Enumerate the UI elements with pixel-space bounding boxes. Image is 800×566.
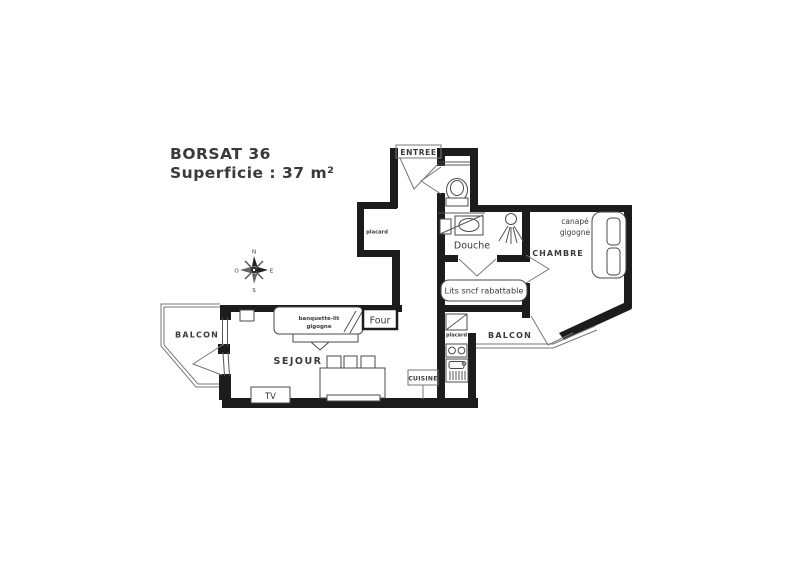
shower-room-door-swing [459,259,496,276]
wall-segment [468,333,476,408]
banquette-label-line2: gigogne [306,324,331,330]
room-label-cuisine: CUISINE [408,376,437,383]
wall-segment [522,305,530,318]
floor-plan-page: BORSAT 36 Superficie : 37 m² N S E O [0,0,800,566]
wall-segment [470,205,632,212]
chair-icon [344,356,357,369]
room-label-entree: ENTREE [400,148,436,157]
wall-segment [437,305,530,312]
room-label-chambre: CHAMBRE [532,249,583,258]
banquette-label-line1: banquette-lit [299,316,340,322]
sofa-bed-label-line2: gigogne [560,228,591,237]
fold-down-beds-label: Lits sncf rabattable [445,286,524,296]
wall-segment [390,148,398,208]
hob-icon [446,344,467,357]
shower-head-icon [499,214,523,245]
walls [218,148,632,408]
compass-rose-icon: N S E O [234,250,273,295]
chair-icon [327,356,341,369]
balcony-railing [164,307,220,384]
closet-label-entry: placard [366,230,388,236]
balcony-left-outline [161,304,220,387]
sofa-bed-icon [592,212,626,278]
plan-title: BORSAT 36 Superficie : 37 m² [170,145,334,182]
room-labels: ENTREE placard Douche canapé gigogne CHA… [175,148,591,402]
wall-segment [470,148,478,210]
bathroom-fixtures [438,162,523,244]
plan-title-name: BORSAT 36 [170,145,271,163]
compass-west-label: O [234,269,239,275]
dining-table-icon [320,356,385,401]
sofa-bed-label-line1: canapé [561,217,589,226]
plan-title-area: Superficie : 37 m² [170,164,334,182]
toilet-icon [446,179,468,207]
balcony-railing [161,304,220,387]
wall-segment [497,255,530,262]
room-label-balcon-left: BALCON [175,331,219,340]
wall-segment [445,255,458,262]
compass-south-label: S [252,288,256,294]
room-label-balcon-right: BALCON [488,331,532,340]
compass-north-label: N [252,250,256,256]
wall-segment [437,312,445,408]
oven-label: Four [370,316,391,327]
wall-segment [357,202,364,257]
kitchen-counter-outline [408,370,438,399]
kitchen-sink-icon [446,359,468,382]
room-label-douche: Douche [454,241,490,252]
floor-plan-drawing: BORSAT 36 Superficie : 37 m² N S E O [0,0,800,566]
window-pane [223,352,225,376]
vanity-sink-icon [438,213,485,235]
kitchen-cupboard-icon [446,314,467,330]
room-label-sejour: SEJOUR [274,356,323,367]
wall-segment [219,374,231,400]
wall-segment [522,205,530,255]
wall-segment [392,250,400,312]
tv-label: TV [264,392,276,402]
compass-east-label: E [270,269,274,275]
wall-segment [220,305,231,320]
chair-icon [361,356,375,369]
closet-label-kitchen: placard [446,333,467,339]
window-pane [228,352,230,376]
wall-cabinet-icon [240,310,254,321]
